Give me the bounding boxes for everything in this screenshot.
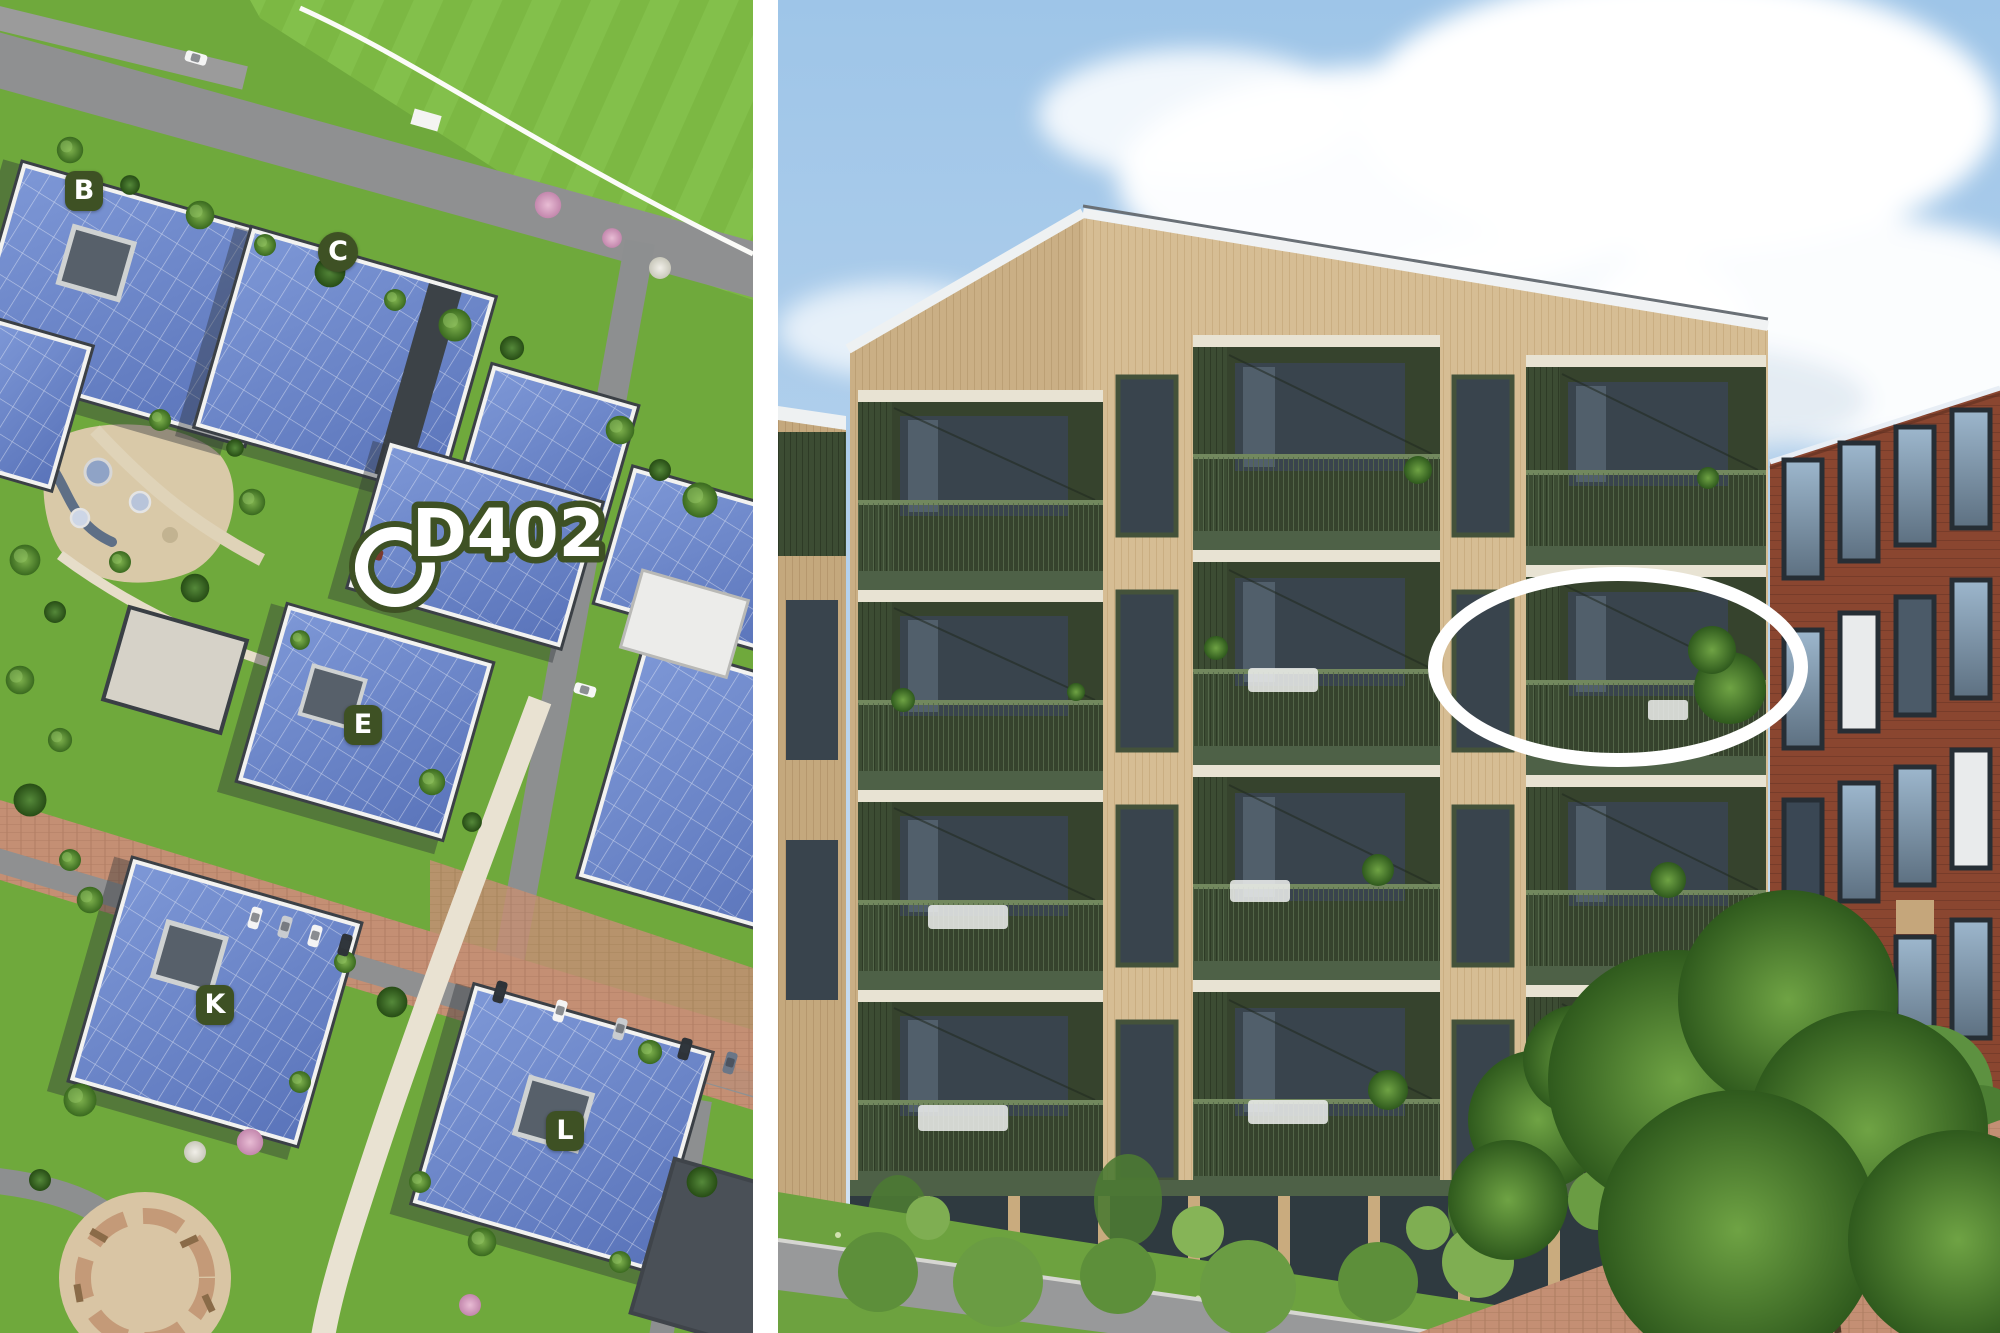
- site-plan-illustration: [0, 0, 753, 1333]
- unit-highlight-ellipse[interactable]: [1428, 567, 1808, 767]
- balcony-stack-1: [858, 390, 1103, 1190]
- building-photo-panel: [778, 0, 2000, 1333]
- site-plan-panel: B C E K L D402: [0, 0, 753, 1333]
- building-photo-illustration: [778, 0, 2000, 1333]
- balcony-stack-2: [1193, 335, 1440, 1195]
- building-badge-c[interactable]: C: [318, 232, 358, 272]
- building-badge-l[interactable]: L: [546, 1111, 584, 1151]
- building-badge-b[interactable]: B: [65, 171, 103, 211]
- building-badge-k[interactable]: K: [196, 985, 234, 1025]
- unit-label: D402: [412, 495, 605, 572]
- panel-divider: [753, 0, 778, 1333]
- composite-property-image: B C E K L D402: [0, 0, 2000, 1333]
- unit-marker-text: D402: [400, 486, 640, 582]
- building-badge-e[interactable]: E: [344, 705, 382, 745]
